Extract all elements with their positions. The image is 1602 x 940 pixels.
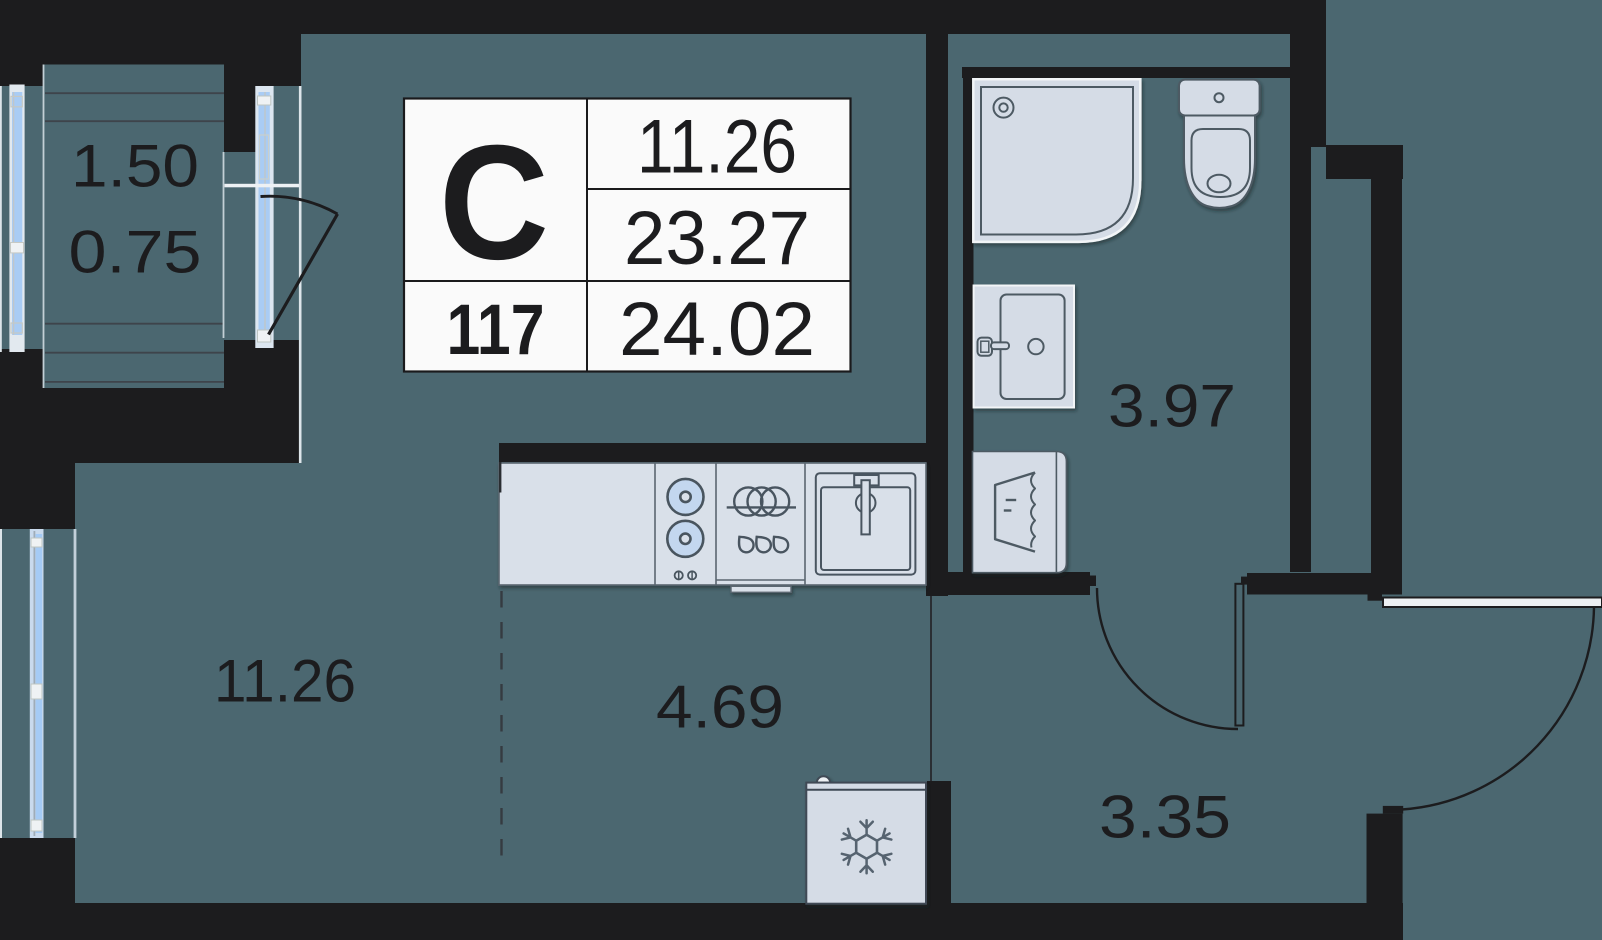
svg-text:23.27: 23.27 bbox=[624, 196, 810, 281]
svg-text:117: 117 bbox=[447, 291, 545, 370]
svg-text:3.35: 3.35 bbox=[1099, 784, 1231, 851]
svg-text:24.02: 24.02 bbox=[619, 287, 815, 372]
svg-text:0.75: 0.75 bbox=[69, 219, 202, 286]
svg-text:С: С bbox=[439, 111, 549, 294]
svg-text:3.97: 3.97 bbox=[1108, 373, 1236, 440]
svg-text:11.26: 11.26 bbox=[214, 648, 356, 715]
svg-text:11.26: 11.26 bbox=[637, 105, 797, 190]
svg-text:4.69: 4.69 bbox=[656, 674, 784, 741]
svg-text:1.50: 1.50 bbox=[71, 133, 199, 200]
